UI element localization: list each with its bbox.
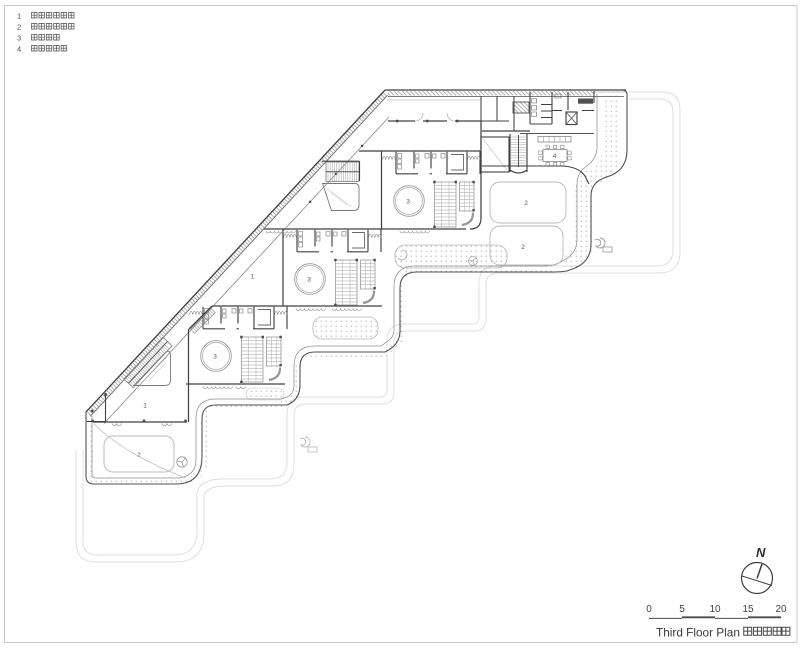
svg-text:5: 5 <box>679 604 685 615</box>
svg-text:0: 0 <box>646 604 652 615</box>
svg-text:1: 1 <box>251 274 255 281</box>
svg-text:Third Floor Plan: Third Floor Plan <box>656 626 740 640</box>
svg-text:10: 10 <box>709 604 721 615</box>
svg-text:N: N <box>756 545 766 560</box>
svg-text:20: 20 <box>775 604 787 615</box>
svg-text:4: 4 <box>553 153 557 160</box>
svg-text:1: 1 <box>17 12 21 21</box>
svg-text:2: 2 <box>17 23 21 32</box>
svg-text:2: 2 <box>524 200 528 207</box>
svg-text:1: 1 <box>143 403 147 410</box>
svg-text:3: 3 <box>17 34 21 43</box>
svg-text:4: 4 <box>17 45 21 54</box>
svg-text:2: 2 <box>521 244 525 251</box>
svg-text:15: 15 <box>742 604 754 615</box>
